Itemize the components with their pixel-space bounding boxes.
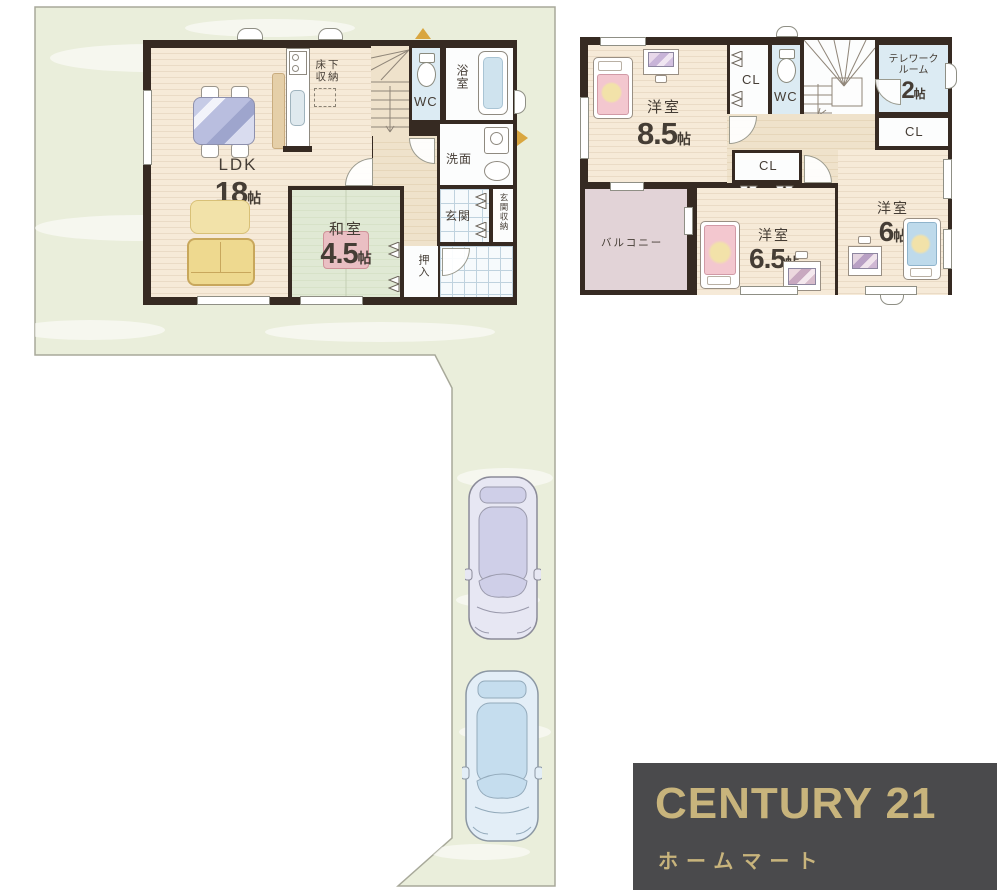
room-wc-1f: WC [412,48,440,120]
window [197,296,270,305]
sofa-seat-line [191,272,251,273]
room-bedroom-6: 洋室 6帖 [838,150,948,295]
closet-chevrons-icon [388,242,400,258]
stairs-first-floor [371,46,409,136]
car-icon [462,667,542,845]
shoe-rack-chevrons-icon [475,222,487,238]
stairs-second-floor [804,40,875,120]
closet-b-label: CL [905,124,924,139]
vent-marker-icon [415,28,431,39]
underfloor-storage-hatch [314,88,336,107]
chair-icon [201,143,219,158]
room-washitsu: 和室 4.5帖 [292,190,400,297]
room-bedroom-65: 洋室 6.5帖 [697,188,835,295]
closet-chevrons-icon [388,276,400,292]
washitsu-label: 和室 4.5帖 [298,216,394,276]
window-swing-icon [318,28,343,40]
room-bath: 浴室 [446,48,513,120]
washroom-label: 洗面 [446,150,472,167]
window [740,286,798,295]
store-name: ホームマート [658,845,825,874]
room-balcony: バルコニー [585,189,687,290]
window [610,182,644,191]
rug [190,200,250,234]
bathtub-water [483,57,503,109]
window-swing-icon [514,90,526,114]
window-swing-icon [237,28,263,40]
kitchen-back-counter [272,73,285,149]
closet-chevrons-icon [731,91,743,107]
room-oshiire: 押入 [404,246,438,297]
sofa-cushion-line [220,242,221,272]
first-floor-plan: 床下収納 LDK 18帖 [143,40,517,305]
monitor-icon [788,268,816,285]
desk-chair [795,251,808,259]
monitor-icon [648,52,674,67]
bedroom-85-label: 洋室 8.5帖 [608,93,720,157]
window [600,37,646,46]
closet-a-label: CL [742,72,761,87]
bath-label: 浴室 [454,64,471,90]
desk-chair [858,236,871,244]
balcony-wrap: バルコニー [580,183,692,295]
genkan-label: 玄関 [445,207,471,224]
balcony-label: バルコニー [601,235,663,250]
window-swing-icon [776,26,798,37]
window [943,159,952,199]
room-closet-c: CL [732,150,802,183]
room-closet-b: CL [879,118,948,146]
genkan-storage-label: 玄関収納 [498,193,510,231]
dining-table [193,97,255,145]
kitchen-sink [290,90,305,126]
window [300,296,363,305]
car-icon [465,473,541,643]
second-floor-plan: 洋室 8.5帖 CL WC [580,37,952,295]
stove-burner [292,65,299,72]
stove-burner [292,54,299,61]
bed-pillow [910,268,932,277]
window [580,97,589,159]
room-washroom: 洗面 [440,124,513,185]
shoe-rack-chevrons-icon [475,193,487,209]
sink-basin-icon [484,161,510,181]
desk-chair [655,75,667,83]
floorplan-canvas: 床下収納 LDK 18帖 [0,0,1000,894]
window [143,90,152,165]
monitor-icon [852,253,878,269]
window-swing-icon [945,63,957,89]
sofa-icon [187,238,255,286]
window [943,229,952,269]
room-bedroom-85: 洋室 8.5帖 [588,45,727,182]
century21-wordmark: CENTURY 21 [655,779,936,829]
chair-icon [231,143,249,158]
room-closet-a: CL [730,45,768,114]
closet-c-label: CL [759,158,778,173]
washing-machine-drum [490,132,503,145]
balcony-door [684,207,693,235]
door-marker-icon [517,130,528,146]
room-genkan: 玄関 [440,189,489,242]
underfloor-storage-label: 床下収納 [305,56,351,86]
room-genkan-storage: 玄関収納 [493,189,513,242]
room-wc-2f: WC [772,45,800,114]
century21-logo: CENTURY 21 ホームマート [633,763,997,890]
wc-2f-label: WC [774,89,798,104]
oshiire-label: 押入 [415,254,431,278]
closet-chevrons-icon [731,51,743,67]
bed-blanket [907,222,937,266]
bed-pillow [598,61,622,71]
wc-label: WC [414,94,438,109]
room-washitsu-wrap: 和室 4.5帖 [288,186,404,297]
